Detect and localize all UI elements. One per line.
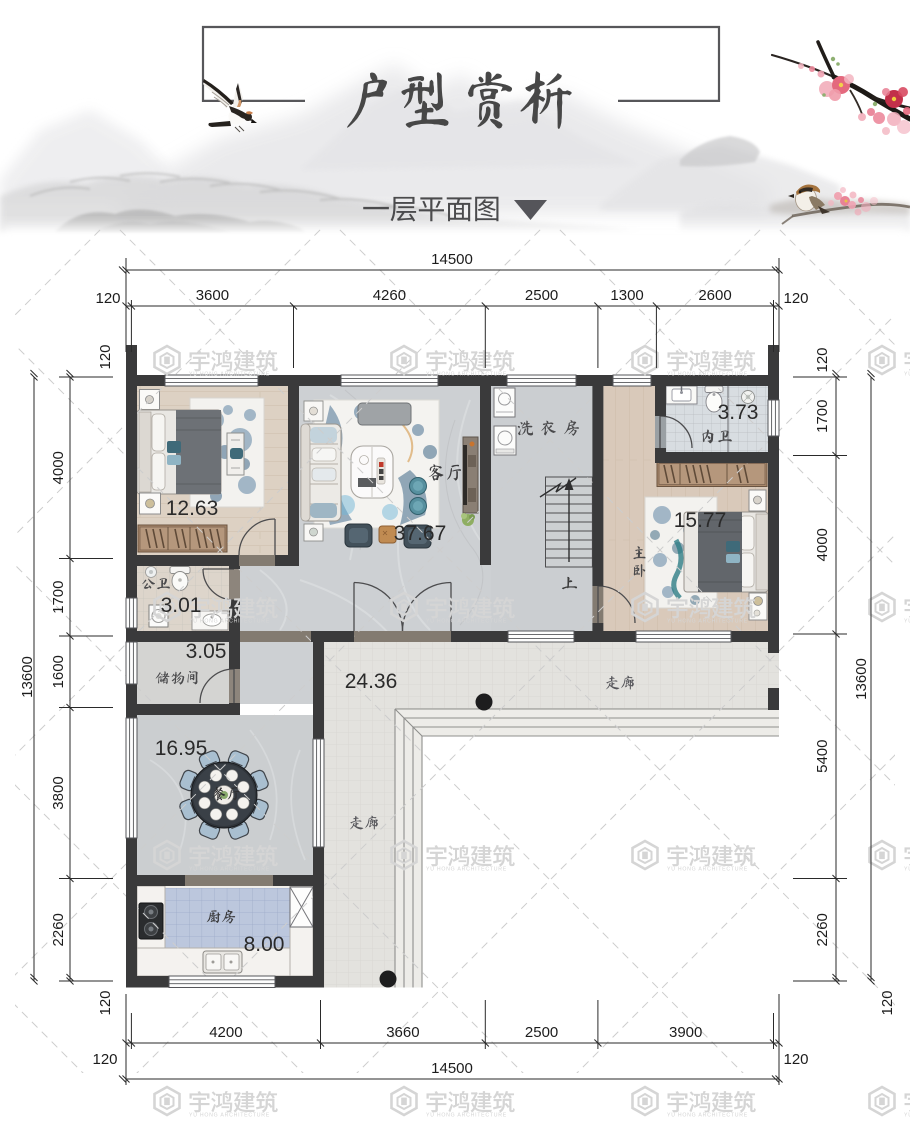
svg-text:14500: 14500 xyxy=(431,251,473,268)
svg-text:4200: 4200 xyxy=(209,1024,242,1041)
svg-text:120: 120 xyxy=(783,290,808,307)
svg-text:120: 120 xyxy=(95,290,120,307)
svg-text:15.77: 15.77 xyxy=(674,509,727,532)
svg-text:5400: 5400 xyxy=(814,740,831,773)
svg-text:120: 120 xyxy=(814,347,831,372)
svg-text:3.73: 3.73 xyxy=(718,401,759,424)
svg-text:2600: 2600 xyxy=(698,287,731,304)
svg-text:2500: 2500 xyxy=(525,1024,558,1041)
svg-text:4000: 4000 xyxy=(50,451,67,484)
svg-text:13600: 13600 xyxy=(19,656,36,698)
svg-text:3900: 3900 xyxy=(669,1024,702,1041)
svg-text:8.00: 8.00 xyxy=(244,933,285,956)
svg-text:3800: 3800 xyxy=(50,776,67,809)
svg-text:3.01: 3.01 xyxy=(161,594,202,617)
svg-text:16.95: 16.95 xyxy=(155,737,208,760)
svg-text:3660: 3660 xyxy=(386,1024,419,1041)
svg-text:3600: 3600 xyxy=(196,287,229,304)
svg-text:1300: 1300 xyxy=(610,287,643,304)
svg-text:1700: 1700 xyxy=(50,581,67,614)
svg-text:14500: 14500 xyxy=(431,1060,473,1077)
svg-text:13600: 13600 xyxy=(853,658,870,700)
svg-text:37.67: 37.67 xyxy=(394,522,447,545)
svg-text:1700: 1700 xyxy=(814,400,831,433)
svg-text:3.05: 3.05 xyxy=(186,640,227,663)
svg-text:120: 120 xyxy=(879,990,896,1015)
svg-text:120: 120 xyxy=(97,344,114,369)
svg-text:4260: 4260 xyxy=(373,287,406,304)
svg-text:120: 120 xyxy=(97,990,114,1015)
svg-text:24.36: 24.36 xyxy=(345,670,398,693)
svg-text:2260: 2260 xyxy=(814,913,831,946)
svg-text:12.63: 12.63 xyxy=(166,497,219,520)
svg-text:2260: 2260 xyxy=(50,913,67,946)
svg-text:2500: 2500 xyxy=(525,287,558,304)
svg-text:120: 120 xyxy=(783,1051,808,1068)
svg-text:1600: 1600 xyxy=(50,655,67,688)
svg-text:4000: 4000 xyxy=(814,528,831,561)
svg-text:120: 120 xyxy=(92,1051,117,1068)
